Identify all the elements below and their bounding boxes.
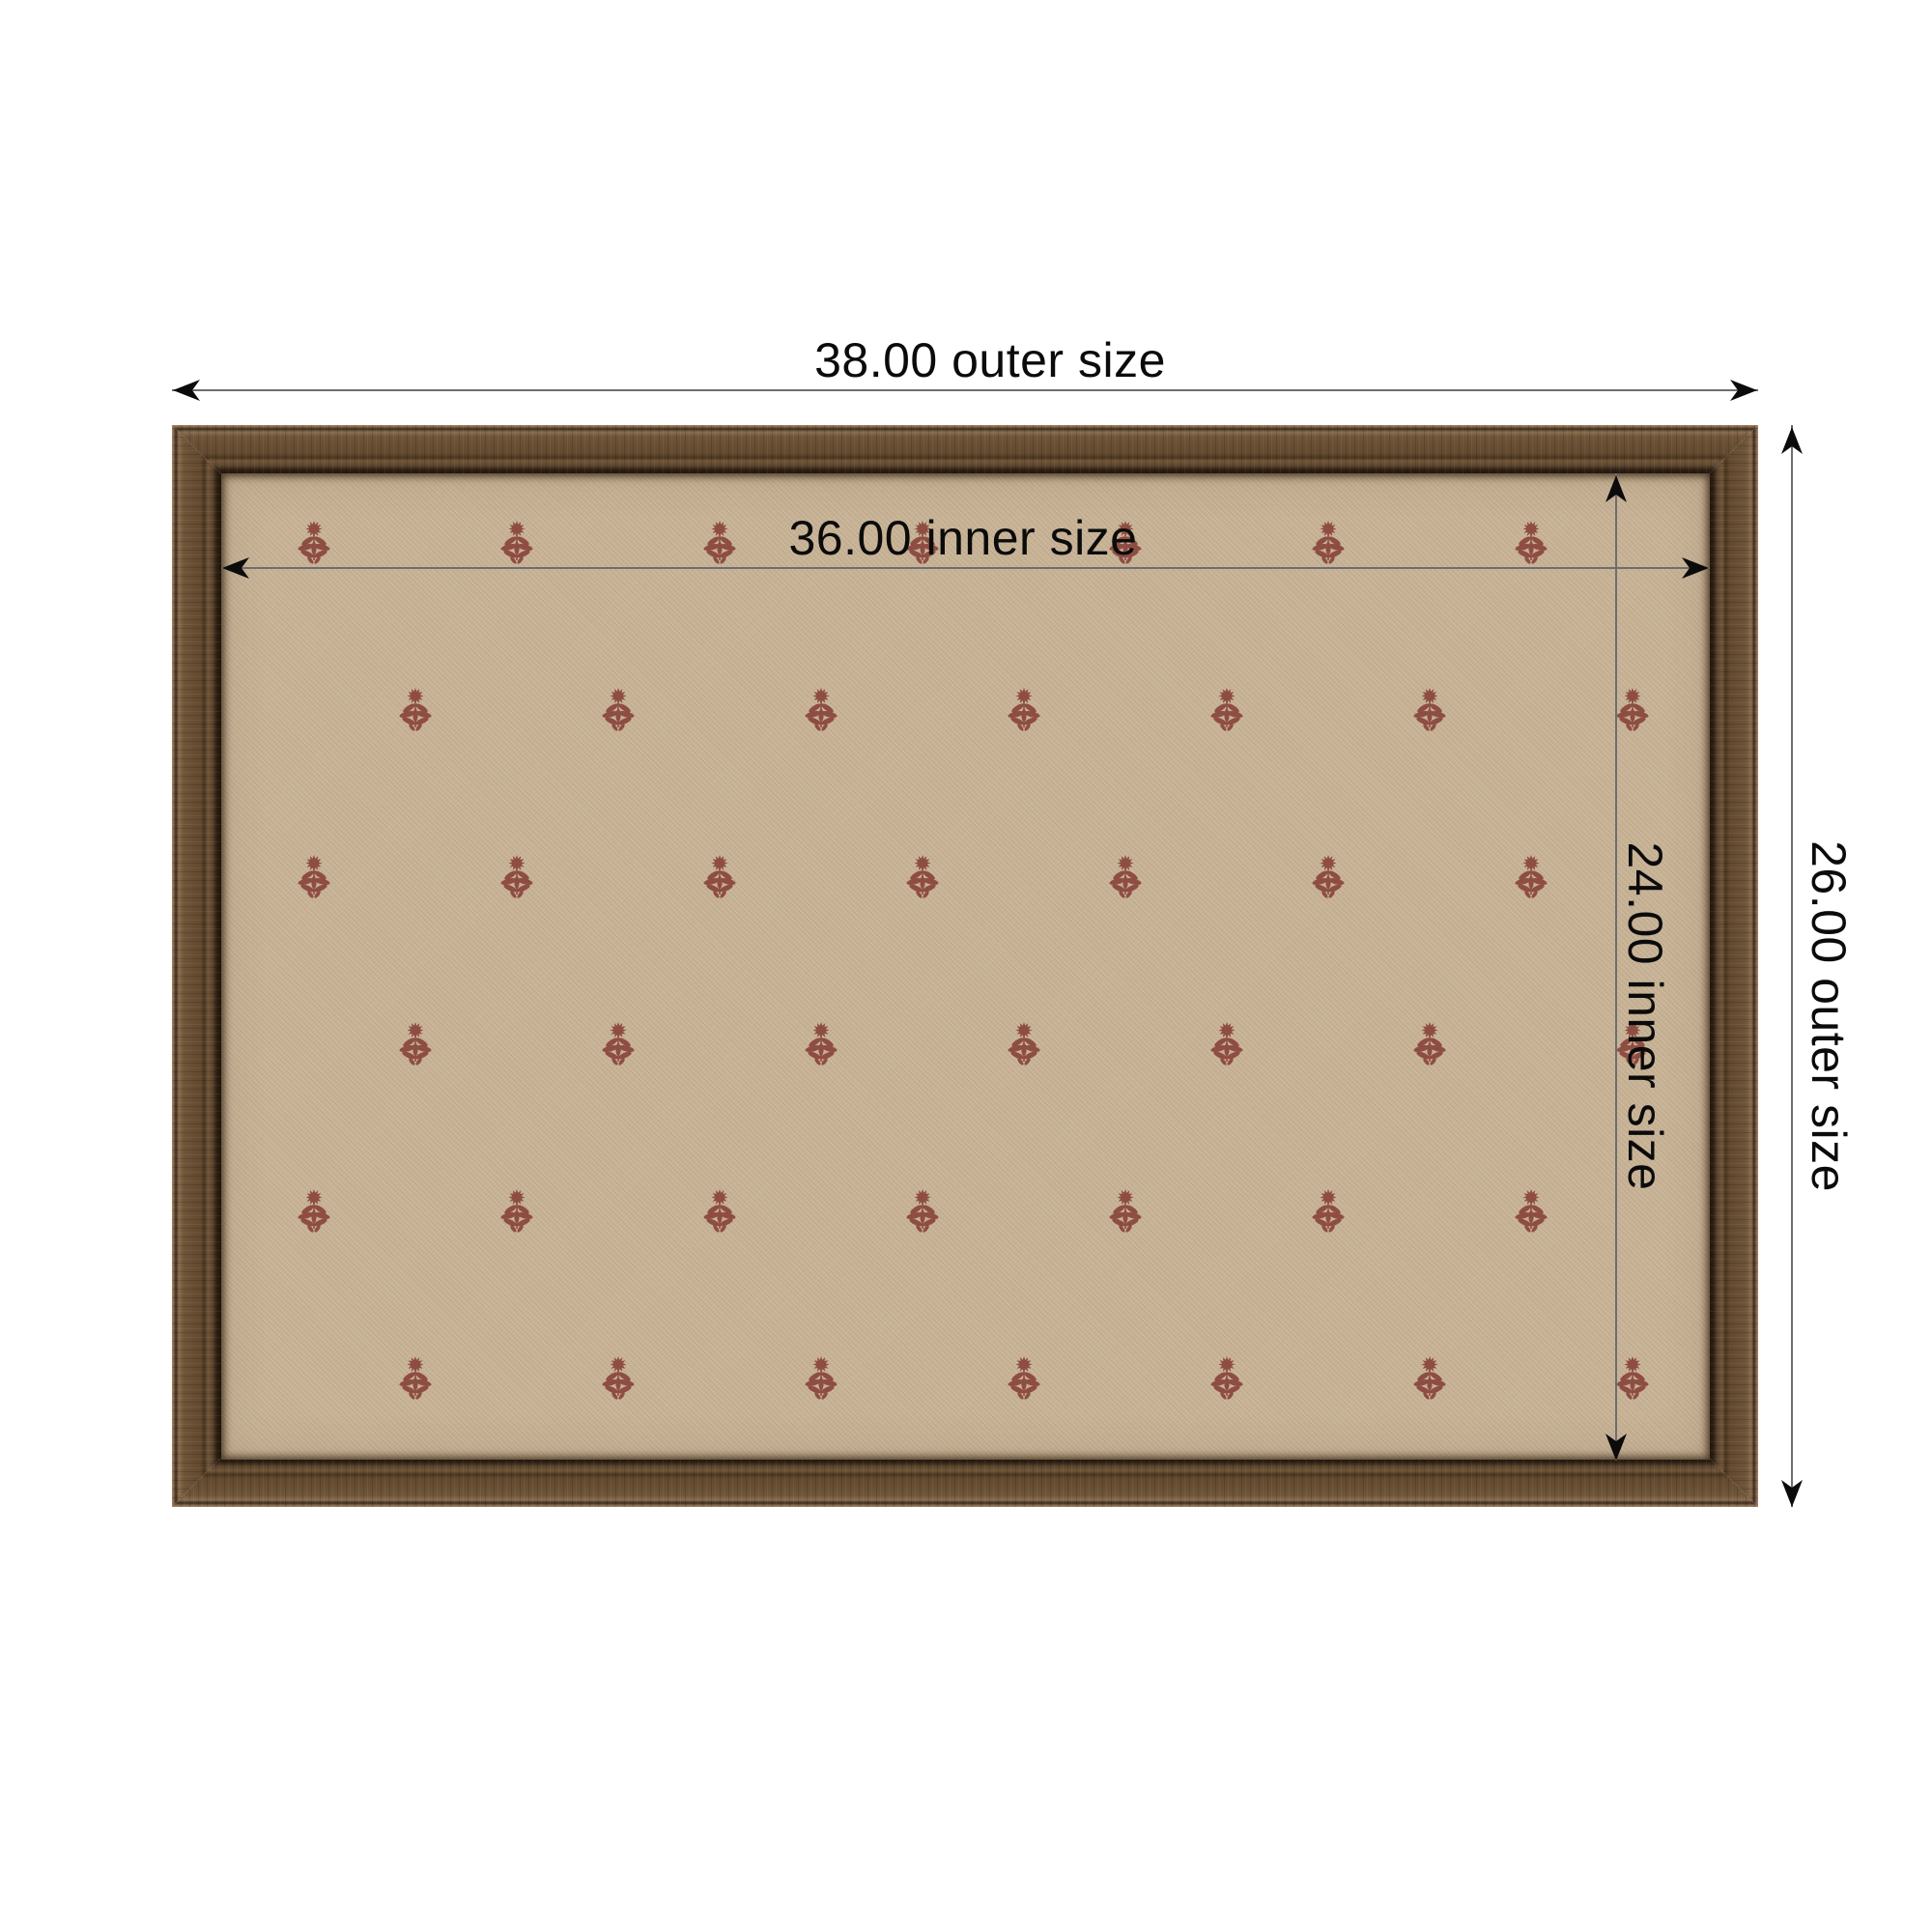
floral-sprig-motif: [1109, 1188, 1142, 1235]
floral-sprig-motif: [399, 687, 432, 733]
inner-width-line: [221, 567, 1710, 569]
floral-sprig-motif: [602, 687, 635, 733]
arrowhead-up-icon: [1605, 474, 1628, 503]
frame-left-rail: [172, 425, 221, 1507]
inner-width-label: 36.00 inner size: [577, 511, 1350, 565]
arrowhead-down-icon: [1780, 1479, 1804, 1508]
floral-sprig-motif: [298, 520, 330, 566]
floral-sprig-motif: [703, 1188, 736, 1235]
arrowhead-up-icon: [1780, 426, 1804, 455]
floral-sprig-motif: [500, 1188, 533, 1235]
floral-sprig-motif: [1413, 687, 1446, 733]
floral-sprig-motif: [805, 1021, 838, 1067]
floral-sprig-motif: [1109, 854, 1142, 900]
floral-sprig-motif: [298, 854, 330, 900]
floral-sprig-motif: [703, 854, 736, 900]
outer-width-line: [172, 389, 1758, 391]
floral-sprig-motif: [1008, 1021, 1040, 1067]
floral-sprig-motif: [602, 1021, 635, 1067]
arrowhead-left-icon: [221, 556, 250, 580]
floral-sprig-motif: [1210, 1021, 1243, 1067]
floral-sprig-motif: [1515, 1188, 1548, 1235]
floral-sprig-motif: [1210, 687, 1243, 733]
floral-sprig-motif: [1312, 854, 1345, 900]
linen-board: [221, 473, 1710, 1460]
floral-sprig-motif: [805, 1355, 838, 1402]
floral-sprig-motif: [602, 1355, 635, 1402]
floral-sprig-motif: [1008, 1355, 1040, 1402]
arrowhead-right-icon: [1681, 556, 1710, 580]
product-dimension-diagram: 38.00 outer size 36.00 inner size 26.00 …: [0, 0, 1932, 1932]
arrowhead-down-icon: [1605, 1433, 1628, 1462]
arrowhead-left-icon: [172, 379, 201, 402]
picture-frame: [172, 425, 1758, 1507]
motif-layer: [221, 473, 1710, 1460]
floral-sprig-motif: [399, 1355, 432, 1402]
floral-sprig-motif: [1008, 687, 1040, 733]
floral-sprig-motif: [1515, 520, 1548, 566]
outer-height-line: [1791, 425, 1793, 1507]
outer-height-label: 26.00 outer size: [1802, 630, 1856, 1403]
frame-right-rail: [1709, 425, 1758, 1507]
floral-sprig-motif: [1515, 854, 1548, 900]
floral-sprig-motif: [1413, 1021, 1446, 1067]
frame-bottom-rail: [172, 1458, 1758, 1507]
floral-sprig-motif: [298, 1188, 330, 1235]
floral-sprig-motif: [906, 854, 939, 900]
outer-width-label: 38.00 outer size: [604, 333, 1377, 387]
arrowhead-right-icon: [1729, 379, 1758, 402]
inner-height-label: 24.00 inner size: [1618, 630, 1672, 1403]
floral-sprig-motif: [1312, 1188, 1345, 1235]
floral-sprig-motif: [1210, 1355, 1243, 1402]
floral-sprig-motif: [906, 1188, 939, 1235]
floral-sprig-motif: [399, 1021, 432, 1067]
frame-top-rail: [172, 425, 1758, 474]
floral-sprig-motif: [500, 854, 533, 900]
floral-sprig-motif: [805, 687, 838, 733]
inner-height-line: [1615, 473, 1617, 1461]
floral-sprig-motif: [500, 520, 533, 566]
floral-sprig-motif: [1413, 1355, 1446, 1402]
